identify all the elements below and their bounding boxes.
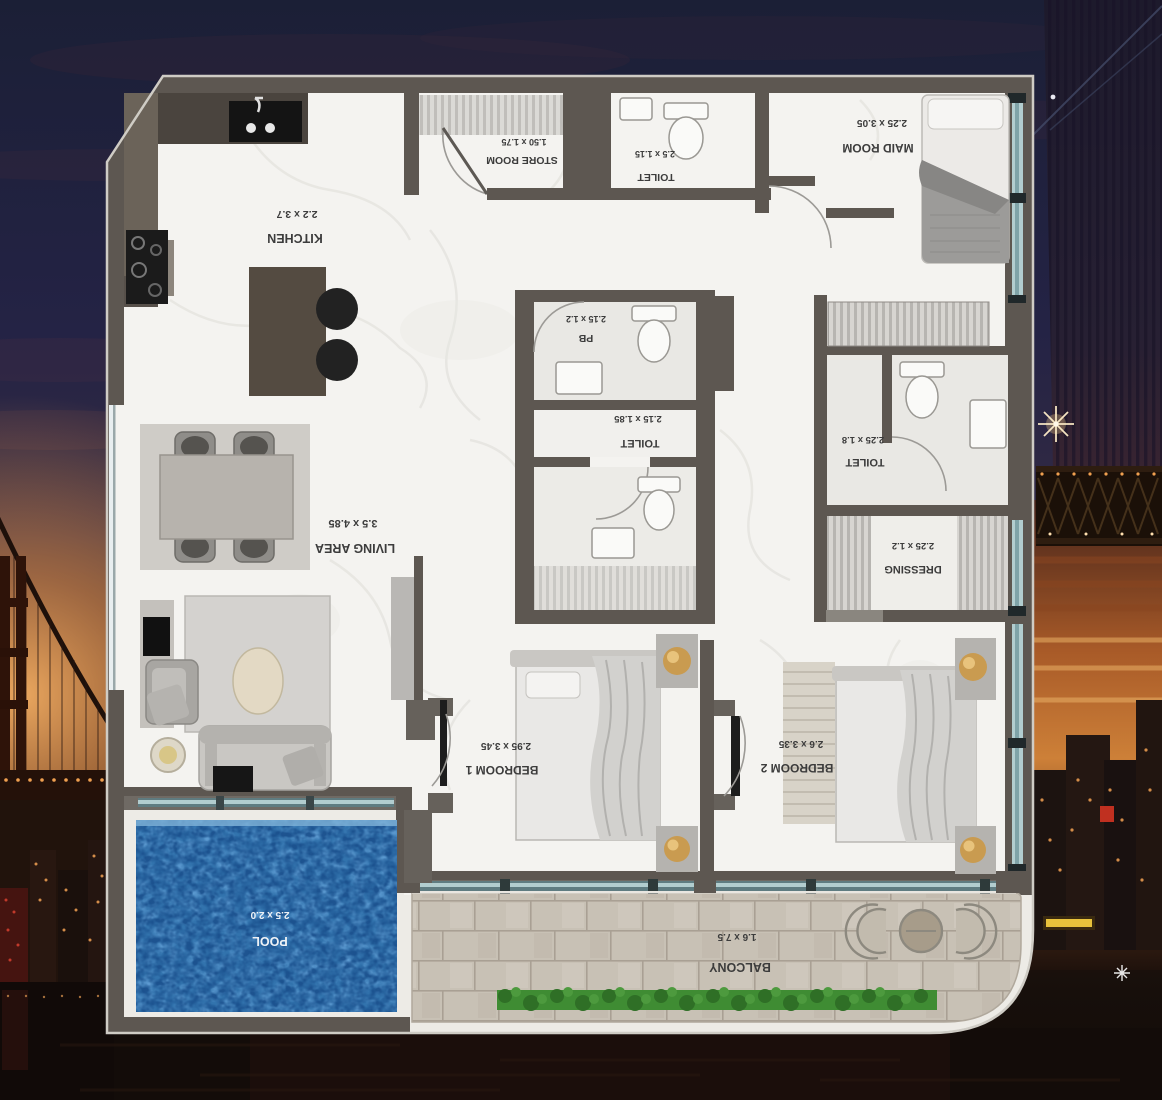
svg-text:DRESSING: DRESSING	[884, 563, 941, 575]
svg-text:2.15 x 1.2: 2.15 x 1.2	[566, 314, 606, 324]
svg-text:BEDROOM 1: BEDROOM 1	[465, 763, 538, 777]
svg-text:2.15 x 1.85: 2.15 x 1.85	[614, 413, 662, 424]
svg-text:TOILET: TOILET	[637, 171, 675, 183]
svg-text:2.5 x 2.0: 2.5 x 2.0	[250, 909, 289, 920]
svg-text:STORE ROOM: STORE ROOM	[486, 154, 558, 166]
svg-text:LIVING AREA: LIVING AREA	[315, 541, 395, 555]
svg-text:BEDROOM 2: BEDROOM 2	[760, 761, 833, 775]
svg-text:MAID ROOM: MAID ROOM	[842, 141, 913, 155]
svg-text:2.25 x 1.2: 2.25 x 1.2	[892, 540, 934, 551]
svg-text:KITCHEN: KITCHEN	[267, 231, 323, 245]
svg-text:2.25 x 1.8: 2.25 x 1.8	[842, 434, 884, 445]
svg-text:2.95 x 3.45: 2.95 x 3.45	[481, 740, 531, 751]
svg-text:2.2 x 3.7: 2.2 x 3.7	[276, 208, 317, 220]
svg-text:2.6 x 3.35: 2.6 x 3.35	[778, 738, 823, 749]
svg-text:1.50 x 1.75: 1.50 x 1.75	[501, 137, 546, 147]
svg-text:2.5 x 1.15: 2.5 x 1.15	[635, 149, 675, 159]
svg-text:POOL: POOL	[252, 934, 288, 948]
svg-text:BALCONY: BALCONY	[708, 960, 770, 974]
svg-text:1.6 x 7.5: 1.6 x 7.5	[717, 931, 756, 942]
svg-text:2.25 x 3.05: 2.25 x 3.05	[857, 117, 907, 128]
svg-text:TOILET: TOILET	[845, 456, 884, 468]
svg-text:PB: PB	[578, 332, 593, 344]
svg-text:TOILET: TOILET	[620, 437, 659, 449]
svg-text:3.5 x 4.85: 3.5 x 4.85	[329, 517, 378, 529]
